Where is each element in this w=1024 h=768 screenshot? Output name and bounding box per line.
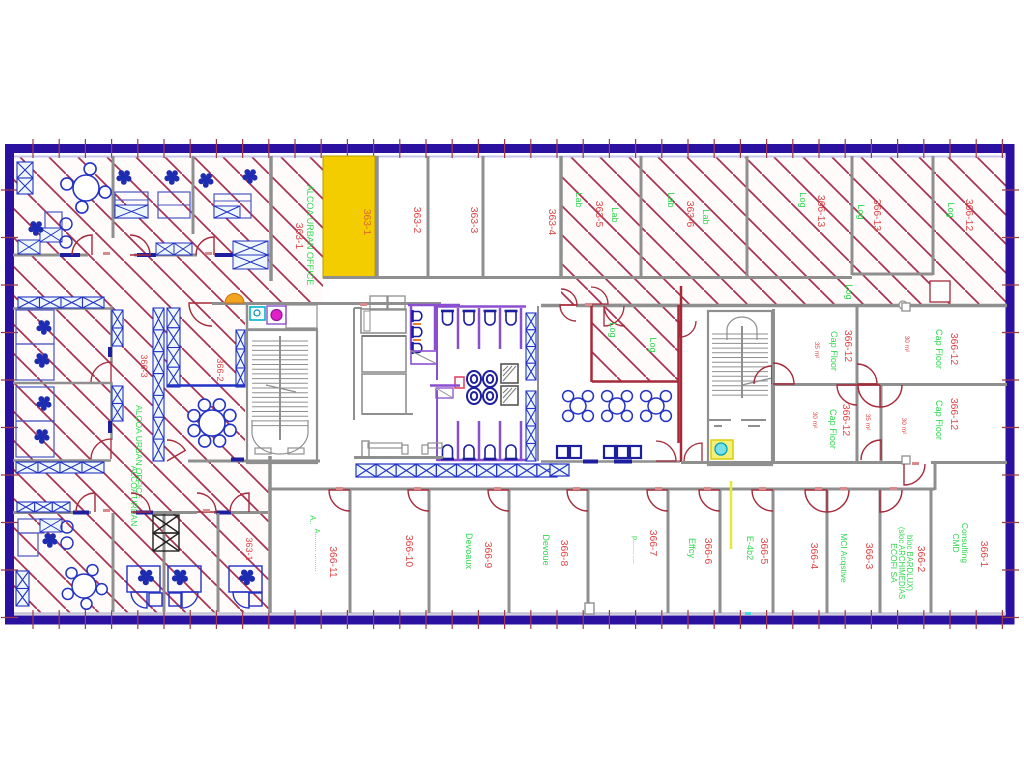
svg-text:366-12: 366-12 xyxy=(948,398,959,431)
svg-text:ALCOA URBAN OFFICE: ALCOA URBAN OFFICE xyxy=(305,185,315,286)
svg-text:363-2: 363-2 xyxy=(411,207,422,234)
svg-text:Log: Log xyxy=(946,202,956,217)
svg-text:366-12: 366-12 xyxy=(948,333,959,366)
svg-text:366-3: 366-3 xyxy=(863,543,874,570)
svg-text:Log: Log xyxy=(844,284,854,299)
svg-text:Cap Floor: Cap Floor xyxy=(829,331,839,371)
svg-text:30 m²: 30 m² xyxy=(903,336,910,353)
svg-text:366-3: 366-3 xyxy=(139,354,149,377)
svg-text:Log: Log xyxy=(798,192,808,207)
svg-text:363-4: 363-4 xyxy=(546,209,557,236)
svg-text:366-10: 366-10 xyxy=(403,535,414,568)
svg-text:Lab: Lab xyxy=(701,209,711,224)
svg-text:Cap Floor: Cap Floor xyxy=(934,329,944,369)
svg-text:bloc BARDLUX): bloc BARDLUX) xyxy=(905,535,914,591)
svg-text:363-3: 363-3 xyxy=(468,207,479,234)
svg-text:363-1: 363-1 xyxy=(361,209,372,236)
svg-text:Log: Log xyxy=(608,322,618,337)
svg-text:p....... ....: p....... .... xyxy=(631,536,640,564)
svg-text:30 m²: 30 m² xyxy=(811,412,818,429)
svg-text:366-12: 366-12 xyxy=(840,404,851,437)
svg-text:366-12: 366-12 xyxy=(963,199,974,232)
svg-text:(sloc ARCHIMEDIAS: (sloc ARCHIMEDIAS xyxy=(897,527,906,599)
svg-text:A..: A.. xyxy=(308,515,317,525)
svg-text:35 m²: 35 m² xyxy=(813,342,820,359)
svg-text:366-9: 366-9 xyxy=(482,542,493,569)
svg-text:363-1: 363-1 xyxy=(293,223,304,250)
svg-text:Log: Log xyxy=(856,204,866,219)
svg-text:35 m²: 35 m² xyxy=(864,414,871,431)
svg-text:E-4b2: E-4b2 xyxy=(745,536,755,560)
svg-text:Cap Floor: Cap Floor xyxy=(934,400,944,440)
svg-text:Lab: Lab xyxy=(666,192,676,207)
svg-text:366-7: 366-7 xyxy=(647,530,658,557)
svg-text:366-13: 366-13 xyxy=(815,195,826,228)
svg-text:CMD: CMD xyxy=(951,533,961,552)
svg-text:366-11: 366-11 xyxy=(327,546,338,578)
svg-text:366-2: 366-2 xyxy=(215,358,225,381)
svg-text:Devoue: Devoue xyxy=(541,534,551,565)
svg-text:366-8: 366-8 xyxy=(558,540,569,567)
svg-text:366-1: 366-1 xyxy=(978,541,989,568)
svg-text:A......... .........: A......... ......... xyxy=(313,529,322,572)
svg-text:366-4: 366-4 xyxy=(808,543,819,570)
svg-text:366-5: 366-5 xyxy=(758,538,769,565)
svg-text:Lab: Lab xyxy=(574,192,584,207)
svg-text:Effcy: Effcy xyxy=(687,538,697,559)
svg-text:366-12: 366-12 xyxy=(842,330,853,363)
svg-text:Consulting: Consulting xyxy=(960,523,970,563)
svg-text:30 m²: 30 m² xyxy=(900,418,907,435)
svg-text:ALCOA URBAN: ALCOA URBAN xyxy=(129,466,139,526)
svg-text:363-5: 363-5 xyxy=(593,201,604,228)
svg-text:366-13: 366-13 xyxy=(871,199,882,232)
svg-text:Log: Log xyxy=(648,337,658,352)
svg-text:366-6: 366-6 xyxy=(702,538,713,565)
svg-text:Devoaux: Devoaux xyxy=(464,533,474,569)
svg-text:366-2: 366-2 xyxy=(915,546,926,573)
svg-text:MCI Acqstive: MCI Acqstive xyxy=(839,533,849,583)
svg-text:363-1: 363-1 xyxy=(244,537,254,560)
svg-text:Lab: Lab xyxy=(610,207,620,222)
svg-text:363-6: 363-6 xyxy=(684,201,695,228)
svg-text:Cap Floor: Cap Floor xyxy=(828,409,838,449)
